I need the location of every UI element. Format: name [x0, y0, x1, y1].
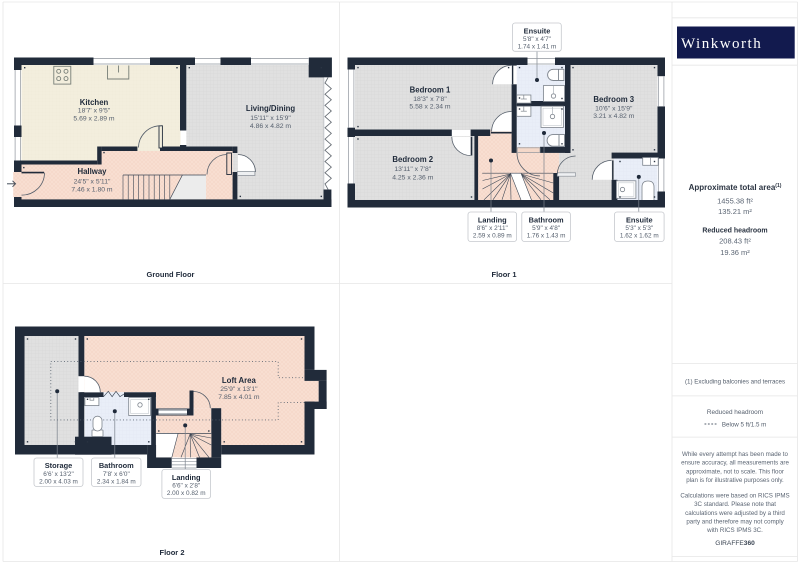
- svg-text:(1) Excluding balconies and te: (1) Excluding balconies and terraces: [685, 379, 785, 386]
- svg-text:1.76 x 1.43 m: 1.76 x 1.43 m: [527, 233, 566, 240]
- svg-text:2.00 x 0.82 m: 2.00 x 0.82 m: [167, 490, 206, 497]
- svg-text:4.25 x 2.36 m: 4.25 x 2.36 m: [392, 175, 434, 182]
- svg-text:18'3" x 7'8": 18'3" x 7'8": [413, 96, 447, 103]
- svg-text:1.62 x 1.62 m: 1.62 x 1.62 m: [620, 233, 659, 240]
- svg-text:Floor 1: Floor 1: [491, 270, 516, 279]
- svg-text:While every attempt has been m: While every attempt has been made to: [682, 451, 788, 458]
- svg-text:18'7' x 9'5": 18'7' x 9'5": [78, 108, 111, 115]
- svg-text:5'9" x 4'8": 5'9" x 4'8": [532, 225, 560, 232]
- svg-text:Approximate total area(1): Approximate total area(1): [689, 183, 782, 192]
- svg-text:Storage: Storage: [45, 461, 73, 470]
- svg-text:25'9" x 13'1": 25'9" x 13'1": [220, 386, 258, 393]
- svg-text:Reduced headroom: Reduced headroom: [707, 409, 763, 416]
- svg-text:ensure accuracy, all measureme: ensure accuracy, all measurements are: [681, 460, 789, 467]
- svg-text:7'8' x 6'0": 7'8' x 6'0": [103, 471, 130, 478]
- svg-text:5'3" x 5'3": 5'3" x 5'3": [625, 225, 653, 232]
- svg-text:2.59 x 0.89 m: 2.59 x 0.89 m: [473, 233, 512, 240]
- svg-text:party and therefore may not co: party and therefore may not comply: [686, 519, 784, 526]
- svg-text:Ensuite: Ensuite: [626, 215, 653, 224]
- svg-text:2.34 x 1.84 m: 2.34 x 1.84 m: [97, 478, 136, 485]
- svg-text:13'11" x 7'8": 13'11" x 7'8": [394, 166, 431, 173]
- svg-text:5.58 x 2.34 m: 5.58 x 2.34 m: [409, 104, 451, 111]
- svg-text:approximate, not to scale. Thi: approximate, not to scale. This floor: [686, 468, 784, 475]
- svg-text:Hallway: Hallway: [77, 167, 107, 176]
- svg-text:3.21 x 4.82 m: 3.21 x 4.82 m: [593, 113, 635, 120]
- svg-text:Ground Floor: Ground Floor: [147, 270, 195, 279]
- svg-text:5'8" x 4'7": 5'8" x 4'7": [523, 36, 551, 43]
- svg-text:Bathroom: Bathroom: [529, 215, 564, 224]
- svg-text:2.00 x 4.03 m: 2.00 x 4.03 m: [39, 478, 78, 485]
- svg-text:19.36 m²: 19.36 m²: [720, 248, 750, 257]
- svg-text:Bedroom 2: Bedroom 2: [392, 155, 433, 164]
- svg-text:6'6' x 13'2": 6'6' x 13'2": [43, 471, 73, 478]
- svg-text:8'6" x 2'11": 8'6" x 2'11": [477, 225, 508, 232]
- svg-text:1455.38 ft²: 1455.38 ft²: [717, 196, 753, 205]
- svg-text:Reduced headroom: Reduced headroom: [702, 227, 767, 234]
- svg-text:plan is for illustrative purpo: plan is for illustrative purposes only.: [686, 477, 784, 484]
- svg-text:Winkworth: Winkworth: [681, 36, 762, 52]
- svg-text:Kitchen: Kitchen: [80, 98, 109, 107]
- svg-text:Landing: Landing: [172, 473, 201, 482]
- svg-text:24'5" x 5'11": 24'5" x 5'11": [74, 179, 111, 186]
- svg-text:with RICS IPMS 3C.: with RICS IPMS 3C.: [706, 527, 763, 534]
- svg-text:135.21 m²: 135.21 m²: [718, 207, 752, 216]
- svg-text:4.86 x 4.82 m: 4.86 x 4.82 m: [250, 123, 292, 130]
- svg-text:10'6" x 15'9": 10'6" x 15'9": [595, 106, 633, 113]
- svg-text:5.69 x 2.89 m: 5.69 x 2.89 m: [73, 115, 115, 122]
- svg-text:1.74 x 1.41 m: 1.74 x 1.41 m: [518, 43, 557, 50]
- svg-text:6'6" x 2'8": 6'6" x 2'8": [172, 482, 200, 489]
- svg-text:Floor 2: Floor 2: [159, 548, 184, 557]
- svg-text:Bedroom 3: Bedroom 3: [593, 95, 634, 104]
- svg-text:Calculations were based on RIC: Calculations were based on RICS IPMS: [680, 492, 789, 499]
- svg-text:Bathroom: Bathroom: [99, 461, 134, 470]
- svg-text:Living/Dining: Living/Dining: [246, 104, 296, 113]
- svg-text:7.46 x 1.80 m: 7.46 x 1.80 m: [71, 187, 113, 194]
- svg-text:calculations were adjusted by: calculations were adjusted by a third: [685, 510, 785, 517]
- svg-text:Ensuite: Ensuite: [524, 26, 551, 35]
- svg-text:7.85 x 4.01 m: 7.85 x 4.01 m: [218, 394, 260, 401]
- svg-text:GIRAFFE360: GIRAFFE360: [715, 540, 755, 547]
- svg-text:3C standard. Please note that: 3C standard. Please note that: [694, 501, 776, 508]
- svg-text:15'11" x 15'9": 15'11" x 15'9": [250, 115, 291, 122]
- svg-text:Landing: Landing: [478, 215, 507, 224]
- svg-text:Bedroom 1: Bedroom 1: [410, 86, 451, 95]
- svg-text:208.43 ft²: 208.43 ft²: [719, 237, 751, 246]
- svg-text:Loft Area: Loft Area: [222, 376, 257, 385]
- svg-text:Below 5 ft/1.5 m: Below 5 ft/1.5 m: [722, 421, 766, 428]
